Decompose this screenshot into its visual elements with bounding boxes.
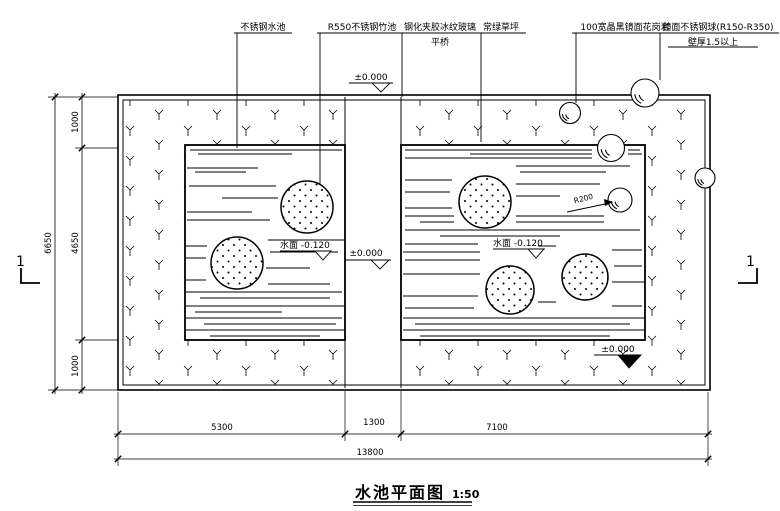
pool-plan-drawing: 不锈钢水池 R550不锈钢竹池 钢化夹胶冰纹玻璃 平桥 常绿草坪 100宽晶黑镜… <box>0 0 780 511</box>
dim-7100: 7100 <box>486 423 508 433</box>
dimension-bottom: 5300 1300 7100 13800 <box>114 391 712 466</box>
planter-circle <box>459 176 511 228</box>
svg-text:水面 -0.120: 水面 -0.120 <box>493 237 543 249</box>
svg-text:水面 -0.120: 水面 -0.120 <box>280 239 330 251</box>
planter-circle <box>211 237 263 289</box>
level-datum-top: ±0.000 <box>349 73 393 92</box>
callout-glass-line2: 平桥 <box>431 36 449 48</box>
dim-1300: 1300 <box>363 418 385 428</box>
dim-13800: 13800 <box>356 448 383 458</box>
steel-ball <box>608 188 632 212</box>
glass-bridge <box>345 97 401 388</box>
steel-ball <box>695 168 715 188</box>
callout-texts: 不锈钢水池 R550不锈钢竹池 钢化夹胶冰纹玻璃 平桥 常绿草坪 100宽晶黑镜… <box>240 21 773 48</box>
planter-circle <box>281 181 333 233</box>
svg-text:±0.000: ±0.000 <box>601 345 635 355</box>
steel-ball <box>631 79 659 107</box>
callout-granite: 100宽晶黑镜面花岗岩 <box>580 21 669 33</box>
dim-4650: 4650 <box>71 232 81 254</box>
title-block: 水池平面图 1:50 <box>353 483 480 506</box>
callout-lawn: 常绿草坪 <box>483 21 519 33</box>
section-marker-left: 1 <box>16 254 40 283</box>
drawing-title: 水池平面图 <box>355 483 445 502</box>
drawing-scale: 1:50 <box>452 488 480 501</box>
svg-text:±0.000: ±0.000 <box>354 73 388 83</box>
dim-5300: 5300 <box>211 423 233 433</box>
section-marker-right: 1 <box>738 254 757 283</box>
svg-text:±0.000: ±0.000 <box>349 249 383 259</box>
dim-6650: 6650 <box>44 232 54 254</box>
steel-ball <box>560 103 581 124</box>
planter-circle <box>562 254 608 300</box>
callout-ball-line2: 壁厚1.5以上 <box>688 36 738 48</box>
callout-ball-line1: 镜面不锈钢球(R150-R350) <box>662 21 773 33</box>
dim-1000-top: 1000 <box>71 111 81 133</box>
callout-glass-line1: 钢化夹胶冰纹玻璃 <box>404 21 476 33</box>
steel-ball <box>598 135 625 162</box>
svg-text:1: 1 <box>746 254 755 270</box>
planter-circle <box>486 266 534 314</box>
drawing-svg: 不锈钢水池 R550不锈钢竹池 钢化夹胶冰纹玻璃 平桥 常绿草坪 100宽晶黑镜… <box>0 0 780 511</box>
svg-text:1: 1 <box>16 254 25 270</box>
callout-bamboo: R550不锈钢竹池 <box>328 21 396 33</box>
dimension-left: 6650 1000 4650 1000 <box>44 93 118 394</box>
callout-steel-pool: 不锈钢水池 <box>240 21 285 33</box>
dim-1000-bottom: 1000 <box>71 355 81 377</box>
